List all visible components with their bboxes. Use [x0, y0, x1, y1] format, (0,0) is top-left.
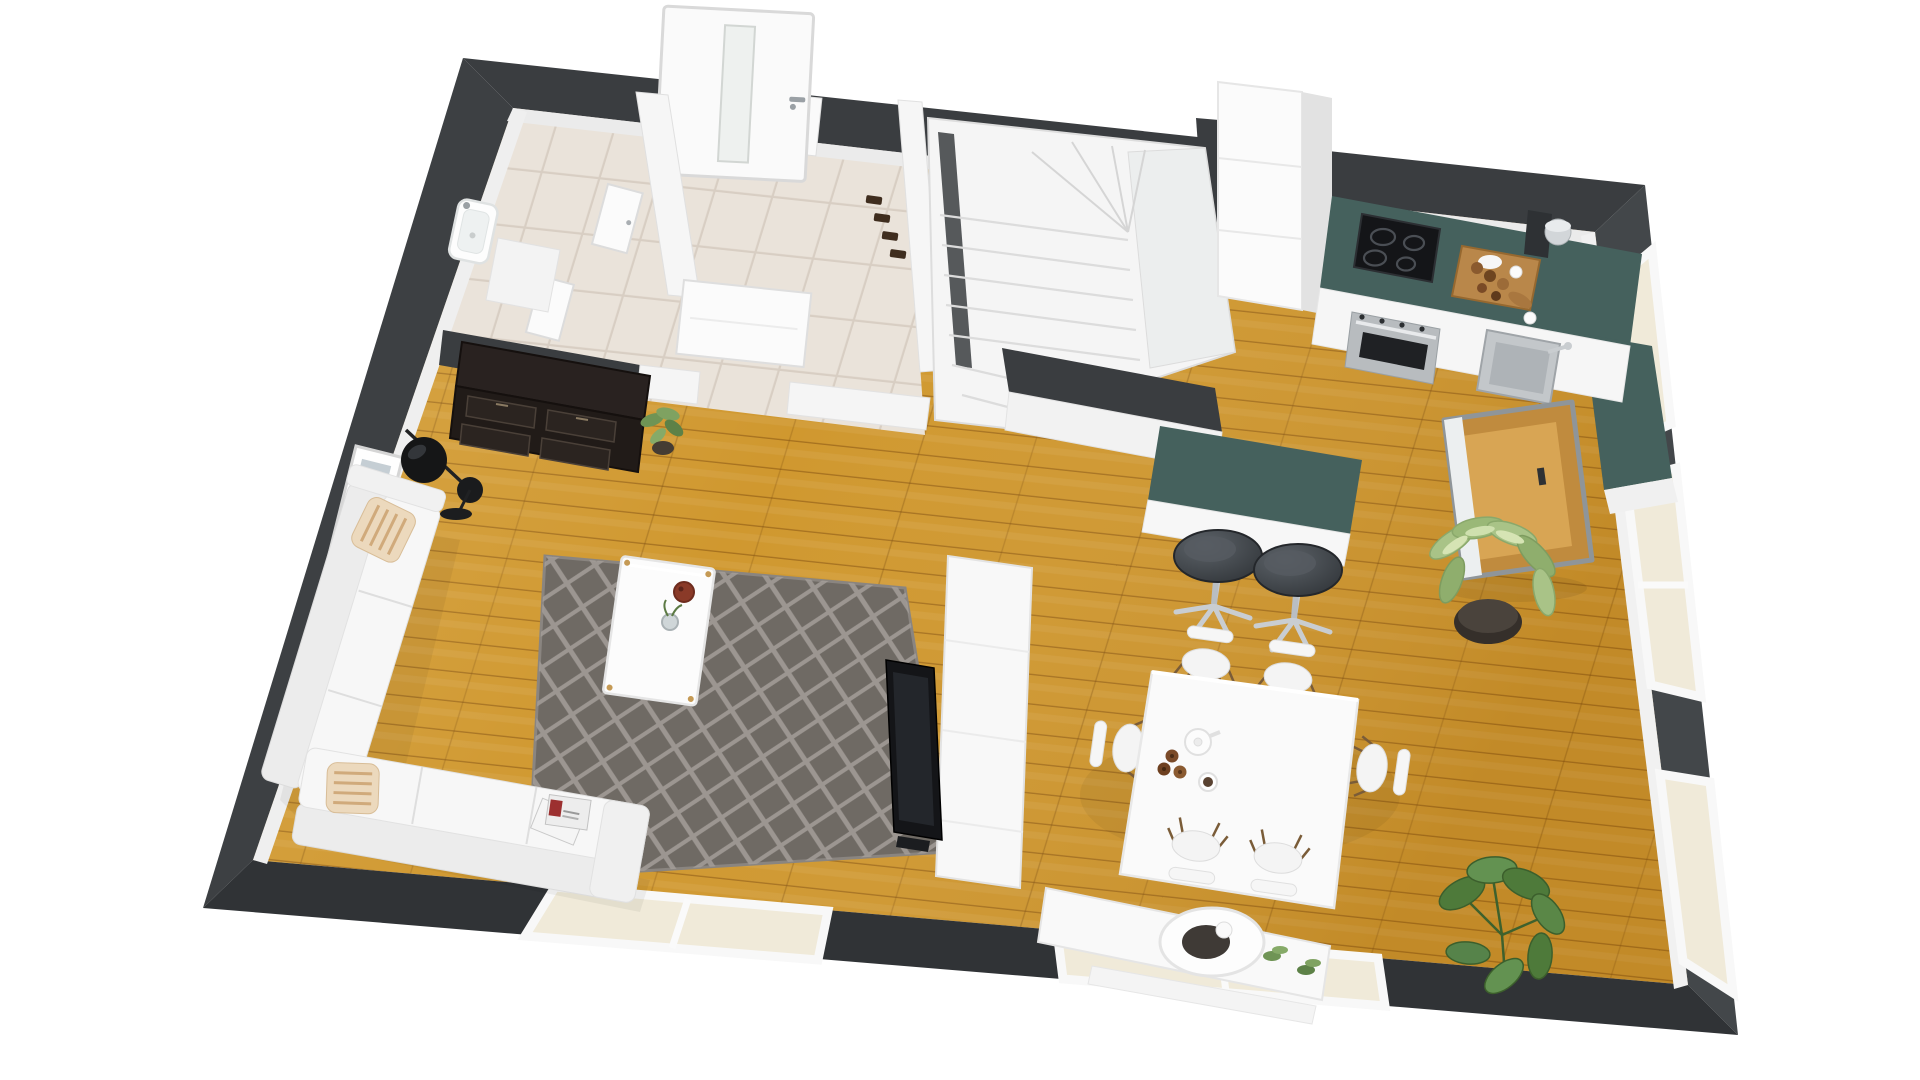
decorative-bowl — [674, 582, 694, 602]
cup-2 — [1524, 312, 1536, 324]
lamp-base — [440, 508, 472, 520]
entrance-door-handle — [789, 97, 805, 103]
cup-1 — [1510, 266, 1522, 278]
coffee-table — [603, 556, 715, 706]
floor-plan-render — [0, 0, 1920, 1080]
entrance-door-glass — [718, 25, 755, 162]
vase — [662, 614, 678, 630]
bowl-vase — [1216, 922, 1232, 938]
sofa-pillow-2 — [326, 762, 380, 814]
entrance-door-open — [655, 6, 814, 182]
tv-screen-sheen — [893, 672, 934, 826]
floor-plan-stage: 3D rendered floor plan — ground floor wi… — [0, 0, 1920, 1080]
entrance — [654, 6, 822, 182]
hall-door-open-wide — [676, 280, 811, 367]
divider-unit — [936, 556, 1032, 888]
plant-pot — [652, 441, 674, 455]
lamp-shade-large — [401, 437, 447, 483]
tall-cabinet-front — [1218, 82, 1302, 310]
bathroom-vanity — [486, 238, 560, 312]
dining-table — [1120, 672, 1358, 908]
